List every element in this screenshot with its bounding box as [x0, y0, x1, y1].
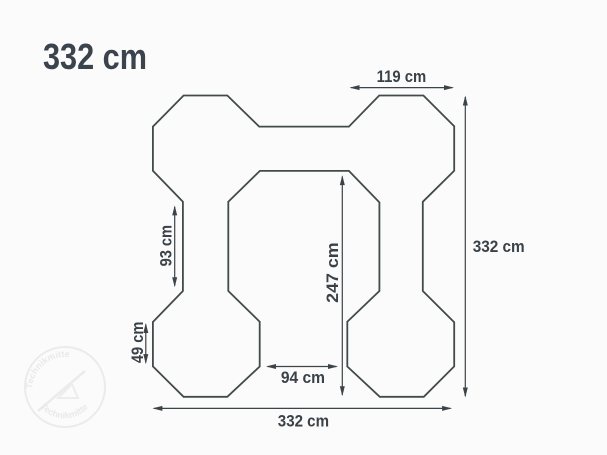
svg-text:93 cm: 93 cm: [156, 225, 175, 266]
svg-text:119 cm: 119 cm: [377, 67, 427, 86]
svg-text:332 cm: 332 cm: [473, 237, 525, 256]
svg-text:49 cm: 49 cm: [128, 322, 147, 363]
svg-text:94 cm: 94 cm: [281, 368, 325, 387]
svg-text:247 cm: 247 cm: [323, 242, 342, 303]
svg-text:332 cm: 332 cm: [278, 412, 329, 431]
svg-text:332 cm: 332 cm: [43, 36, 147, 77]
